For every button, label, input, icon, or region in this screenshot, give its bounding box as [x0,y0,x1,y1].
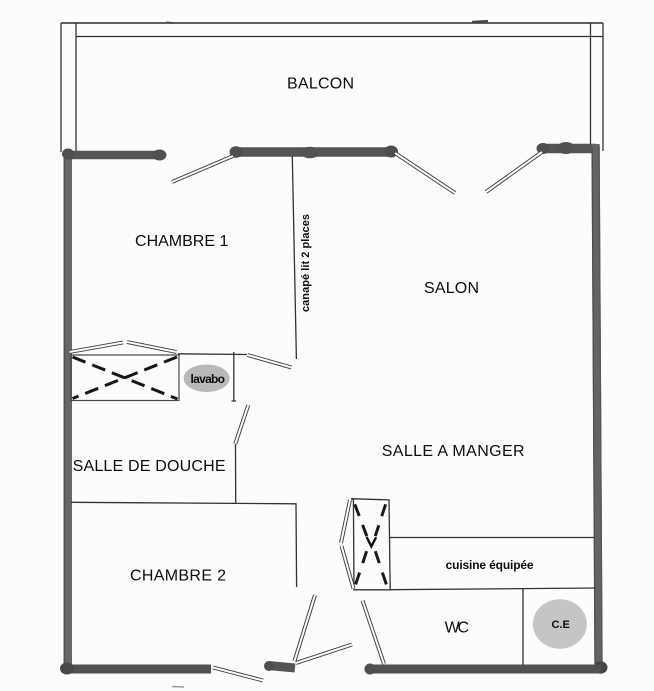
svg-text:SALON: SALON [424,280,479,297]
svg-text:BALCON: BALCON [287,75,354,92]
svg-text:CHAMBRE 1: CHAMBRE 1 [135,233,228,250]
svg-text:SALLE DE DOUCHE: SALLE DE DOUCHE [73,458,226,475]
svg-text:C.E: C.E [552,619,570,631]
svg-text:CHAMBRE 2: CHAMBRE 2 [130,568,226,585]
svg-text:WC: WC [445,620,470,637]
svg-text:lavabo: lavabo [191,372,226,386]
svg-text:cuisine équipée: cuisine équipée [446,558,534,572]
svg-text:SALLE A MANGER: SALLE A MANGER [382,443,525,460]
svg-text:canapé lit 2 places: canapé lit 2 places [300,214,312,312]
